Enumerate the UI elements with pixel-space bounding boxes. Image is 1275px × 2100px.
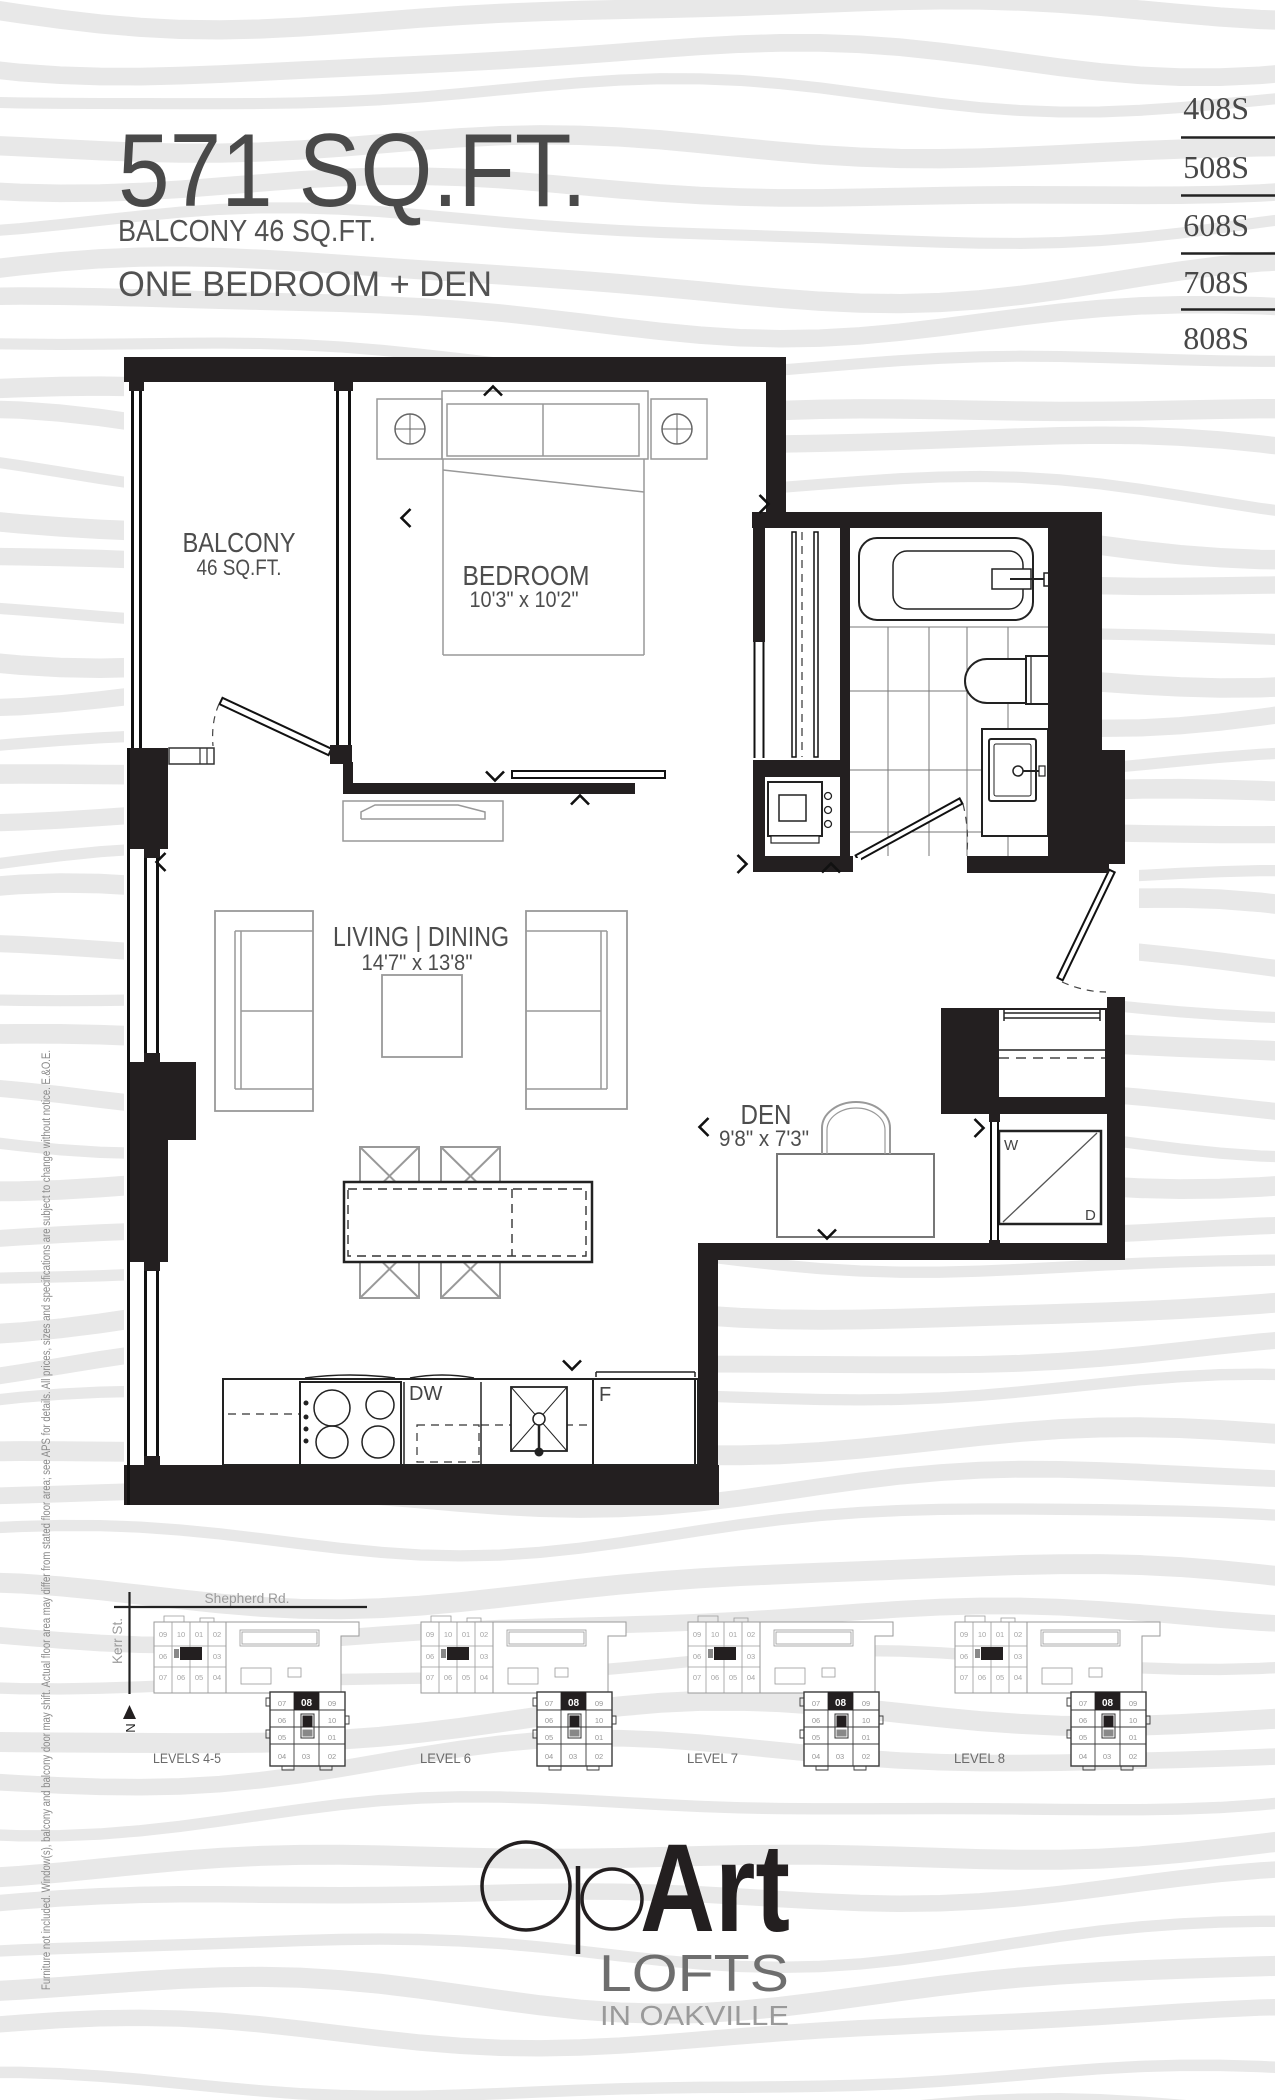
svg-text:10: 10 (978, 1630, 986, 1639)
svg-text:09: 09 (693, 1630, 701, 1639)
svg-text:10'3" x 10'2": 10'3" x 10'2" (470, 587, 579, 612)
svg-text:10: 10 (862, 1716, 870, 1725)
svg-text:09: 09 (328, 1699, 336, 1708)
svg-text:IN OAKVILLE: IN OAKVILLE (600, 2000, 789, 2031)
svg-text:10: 10 (444, 1630, 452, 1639)
svg-text:07: 07 (426, 1673, 434, 1682)
svg-text:02: 02 (1129, 1752, 1137, 1761)
svg-text:06: 06 (278, 1716, 286, 1725)
svg-text:09: 09 (862, 1699, 870, 1708)
svg-text:02: 02 (1014, 1630, 1022, 1639)
svg-text:03: 03 (569, 1752, 577, 1761)
svg-text:LOFTS: LOFTS (599, 1945, 789, 2003)
svg-text:08: 08 (301, 1698, 313, 1709)
svg-text:09: 09 (595, 1699, 603, 1708)
svg-text:Art: Art (640, 1819, 790, 1958)
svg-text:08: 08 (568, 1698, 580, 1709)
svg-text:07: 07 (693, 1673, 701, 1682)
svg-text:04: 04 (812, 1752, 820, 1761)
svg-text:09: 09 (1129, 1699, 1137, 1708)
svg-text:07: 07 (278, 1699, 286, 1708)
svg-text:08: 08 (835, 1698, 847, 1709)
svg-text:02: 02 (595, 1752, 603, 1761)
svg-text:06: 06 (1079, 1716, 1087, 1725)
svg-text:708S: 708S (1183, 264, 1249, 300)
svg-text:03: 03 (1103, 1752, 1111, 1761)
svg-text:07: 07 (545, 1699, 553, 1708)
svg-text:06: 06 (812, 1716, 820, 1725)
svg-text:05: 05 (996, 1673, 1004, 1682)
svg-text:01: 01 (996, 1630, 1004, 1639)
svg-text:01: 01 (1129, 1733, 1137, 1742)
svg-text:09: 09 (159, 1630, 167, 1639)
svg-text:05: 05 (812, 1733, 820, 1742)
svg-text:14'7" x 13'8": 14'7" x 13'8" (362, 950, 473, 975)
svg-text:01: 01 (595, 1733, 603, 1742)
svg-text:02: 02 (862, 1752, 870, 1761)
svg-text:04: 04 (747, 1673, 755, 1682)
svg-text:07: 07 (159, 1673, 167, 1682)
svg-text:03: 03 (747, 1652, 755, 1661)
svg-text:02: 02 (480, 1630, 488, 1639)
svg-text:04: 04 (1079, 1752, 1087, 1761)
svg-text:01: 01 (328, 1733, 336, 1742)
svg-text:03: 03 (302, 1752, 310, 1761)
svg-text:07: 07 (960, 1673, 968, 1682)
svg-text:808S: 808S (1183, 320, 1249, 356)
svg-text:BALCONY: BALCONY (183, 527, 296, 558)
svg-text:9'8" x 7'3": 9'8" x 7'3" (719, 1126, 809, 1151)
svg-text:02: 02 (328, 1752, 336, 1761)
svg-text:01: 01 (195, 1630, 203, 1639)
svg-text:04: 04 (480, 1673, 488, 1682)
svg-text:Kerr St.: Kerr St. (109, 1618, 125, 1664)
svg-text:10: 10 (595, 1716, 603, 1725)
svg-text:04: 04 (213, 1673, 221, 1682)
svg-text:F: F (599, 1384, 611, 1406)
svg-text:02: 02 (747, 1630, 755, 1639)
svg-text:05: 05 (1079, 1733, 1087, 1742)
svg-text:10: 10 (1129, 1716, 1137, 1725)
svg-text:10: 10 (328, 1716, 336, 1725)
svg-text:06: 06 (159, 1652, 167, 1661)
svg-text:06: 06 (978, 1673, 986, 1682)
svg-text:04: 04 (278, 1752, 286, 1761)
svg-text:01: 01 (462, 1630, 470, 1639)
svg-text:D: D (1085, 1207, 1096, 1224)
svg-text:LEVEL 8: LEVEL 8 (954, 1750, 1005, 1766)
svg-text:LIVING | DINING: LIVING | DINING (333, 921, 509, 952)
svg-text:01: 01 (729, 1630, 737, 1639)
svg-text:W: W (1004, 1137, 1019, 1154)
svg-text:LEVEL 7: LEVEL 7 (687, 1750, 738, 1766)
svg-text:05: 05 (462, 1673, 470, 1682)
svg-text:LEVELS 4-5: LEVELS 4-5 (153, 1750, 221, 1766)
svg-text:07: 07 (812, 1699, 820, 1708)
svg-text:DW: DW (409, 1383, 442, 1405)
svg-text:10: 10 (177, 1630, 185, 1639)
svg-text:04: 04 (1014, 1673, 1022, 1682)
svg-text:03: 03 (836, 1752, 844, 1761)
svg-text:06: 06 (693, 1652, 701, 1661)
svg-text:ONE BEDROOM + DEN: ONE BEDROOM + DEN (118, 265, 492, 304)
svg-text:BALCONY 46 SQ.FT.: BALCONY 46 SQ.FT. (118, 213, 376, 248)
svg-text:508S: 508S (1183, 149, 1249, 185)
svg-text:07: 07 (1079, 1699, 1087, 1708)
svg-text:608S: 608S (1183, 207, 1249, 243)
svg-text:571 SQ.FT.: 571 SQ.FT. (118, 113, 587, 229)
svg-text:06: 06 (444, 1673, 452, 1682)
svg-text:05: 05 (545, 1733, 553, 1742)
svg-text:N: N (123, 1723, 138, 1732)
svg-text:05: 05 (729, 1673, 737, 1682)
svg-text:02: 02 (213, 1630, 221, 1639)
svg-text:06: 06 (711, 1673, 719, 1682)
svg-text:03: 03 (480, 1652, 488, 1661)
svg-text:46 SQ.FT.: 46 SQ.FT. (197, 555, 282, 580)
svg-text:04: 04 (545, 1752, 553, 1761)
svg-text:05: 05 (195, 1673, 203, 1682)
svg-text:LEVEL 6: LEVEL 6 (420, 1750, 471, 1766)
svg-text:03: 03 (1014, 1652, 1022, 1661)
svg-text:06: 06 (426, 1652, 434, 1661)
svg-text:Furniture not included. Window: Furniture not included. Window(s), balco… (41, 1050, 53, 1990)
svg-text:09: 09 (426, 1630, 434, 1639)
svg-text:08: 08 (1102, 1698, 1114, 1709)
svg-text:01: 01 (862, 1733, 870, 1742)
svg-text:06: 06 (960, 1652, 968, 1661)
svg-text:05: 05 (278, 1733, 286, 1742)
svg-text:09: 09 (960, 1630, 968, 1639)
svg-text:408S: 408S (1183, 90, 1249, 126)
svg-text:10: 10 (711, 1630, 719, 1639)
svg-text:03: 03 (213, 1652, 221, 1661)
svg-text:06: 06 (177, 1673, 185, 1682)
svg-text:06: 06 (545, 1716, 553, 1725)
svg-text:Shepherd Rd.: Shepherd Rd. (205, 1590, 290, 1606)
